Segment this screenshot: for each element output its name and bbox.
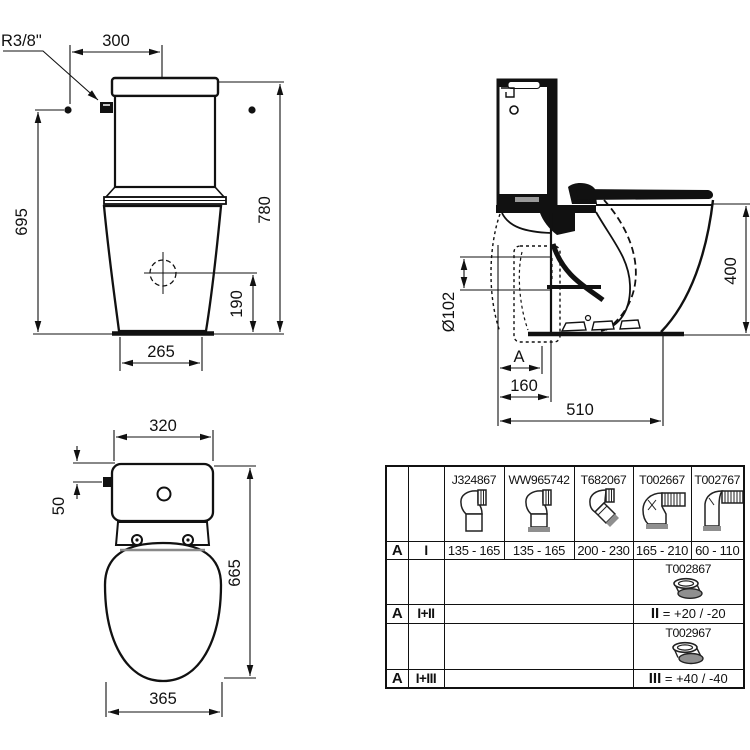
empty-span-cell [444, 604, 633, 623]
note-label: II [651, 605, 659, 622]
dim-label-a: A [513, 348, 524, 366]
range-1: 135 - 165 [504, 541, 574, 559]
dim-label-300: 300 [102, 32, 130, 50]
row-set-label: I [408, 541, 444, 559]
product-code-1: WW965742 [505, 472, 574, 487]
range-2: 200 - 230 [574, 541, 633, 559]
dim-label-d102: Ø102 [440, 292, 458, 332]
side-view [491, 80, 713, 342]
front-inlet-valve [100, 102, 113, 113]
bend-connector-gasket-icon [505, 487, 574, 535]
product-code-0: J324867 [445, 472, 504, 487]
note-value: = +20 / -20 [663, 606, 726, 621]
dim-label-365: 365 [149, 690, 177, 708]
empty-cell [408, 623, 444, 669]
dim-label-320: 320 [149, 417, 177, 435]
empty-cell [386, 623, 408, 669]
product-cell-4: T002767 [691, 466, 744, 541]
dim-label-780: 780 [256, 196, 274, 224]
top-seat-oval [105, 543, 221, 681]
empty-span-cell [444, 669, 633, 688]
accessory-cell-t002967: T002967 [633, 623, 744, 669]
product-code-4: T002767 [692, 472, 744, 487]
product-code-2: T682067 [575, 472, 633, 487]
offset-note-ii: II = +20 / -20 [633, 604, 744, 623]
row-group-label: A [386, 669, 408, 688]
side-cistern-hole [510, 106, 518, 114]
row-set-label: I+II [408, 604, 444, 623]
supply-point-left [64, 106, 71, 113]
side-bowl-outline [661, 200, 713, 332]
row-group-label: A [386, 541, 408, 559]
flex-elbow-connector-icon [634, 487, 691, 535]
product-code-3: T002667 [634, 472, 691, 487]
range-0: 135 - 165 [444, 541, 504, 559]
row-set-label: I+III [408, 669, 444, 688]
bend-connector-icon [445, 487, 504, 535]
dim-label-r38: R3/8" [1, 32, 42, 50]
range-4: 60 - 110 [691, 541, 744, 559]
product-cell-2: T682067 [574, 466, 633, 541]
range-3: 165 - 210 [633, 541, 691, 559]
front-cistern-body [115, 96, 215, 187]
side-hidden-bowl [604, 200, 636, 330]
top-inlet-valve [103, 477, 112, 487]
empty-cell [386, 559, 408, 604]
dim-label-510: 510 [566, 401, 594, 419]
accessory-code-0: T002867 [634, 561, 744, 576]
front-cistern-lid [112, 78, 218, 96]
dim-label-400: 400 [722, 257, 740, 285]
top-hinge-plate [116, 522, 209, 545]
empty-cell [408, 559, 444, 604]
dim-label-50: 50 [50, 497, 68, 515]
dim-label-160: 160 [510, 377, 538, 395]
accessory-code-1: T002967 [634, 625, 744, 640]
empty-span-cell [444, 559, 633, 604]
dim-label-665: 665 [226, 559, 244, 587]
dim-label-190: 190 [228, 290, 246, 318]
note-label: III [649, 670, 662, 687]
product-cell-3: T002667 [633, 466, 691, 541]
accessory-cell-t002867: T002867 [633, 559, 744, 604]
angled-connector-icon [575, 487, 633, 535]
top-cistern [112, 464, 213, 521]
offset-note-iii: III = +40 / -40 [633, 669, 744, 688]
row-group-label: A [386, 604, 408, 623]
note-value: = +40 / -40 [665, 671, 728, 686]
product-cell-1: WW965742 [504, 466, 574, 541]
supply-point-right [248, 106, 255, 113]
table-corner-cell2 [408, 466, 444, 541]
technical-drawing-page: R3/8" 300 695 780 190 265 [0, 0, 750, 750]
side-seat [576, 189, 713, 200]
empty-span-cell [444, 623, 633, 669]
dim-label-695: 695 [13, 208, 31, 236]
flex-long-connector-icon [692, 487, 744, 535]
side-shelf [496, 205, 596, 213]
eccentric-ring-icon [634, 576, 744, 603]
connector-parts-table: J324867 WW965742 [385, 465, 745, 689]
top-view [103, 464, 221, 681]
eccentric-ring-tall-icon [634, 640, 744, 668]
table-corner-cell [386, 466, 408, 541]
dim-label-265: 265 [147, 343, 175, 361]
product-cell-0: J324867 [444, 466, 504, 541]
